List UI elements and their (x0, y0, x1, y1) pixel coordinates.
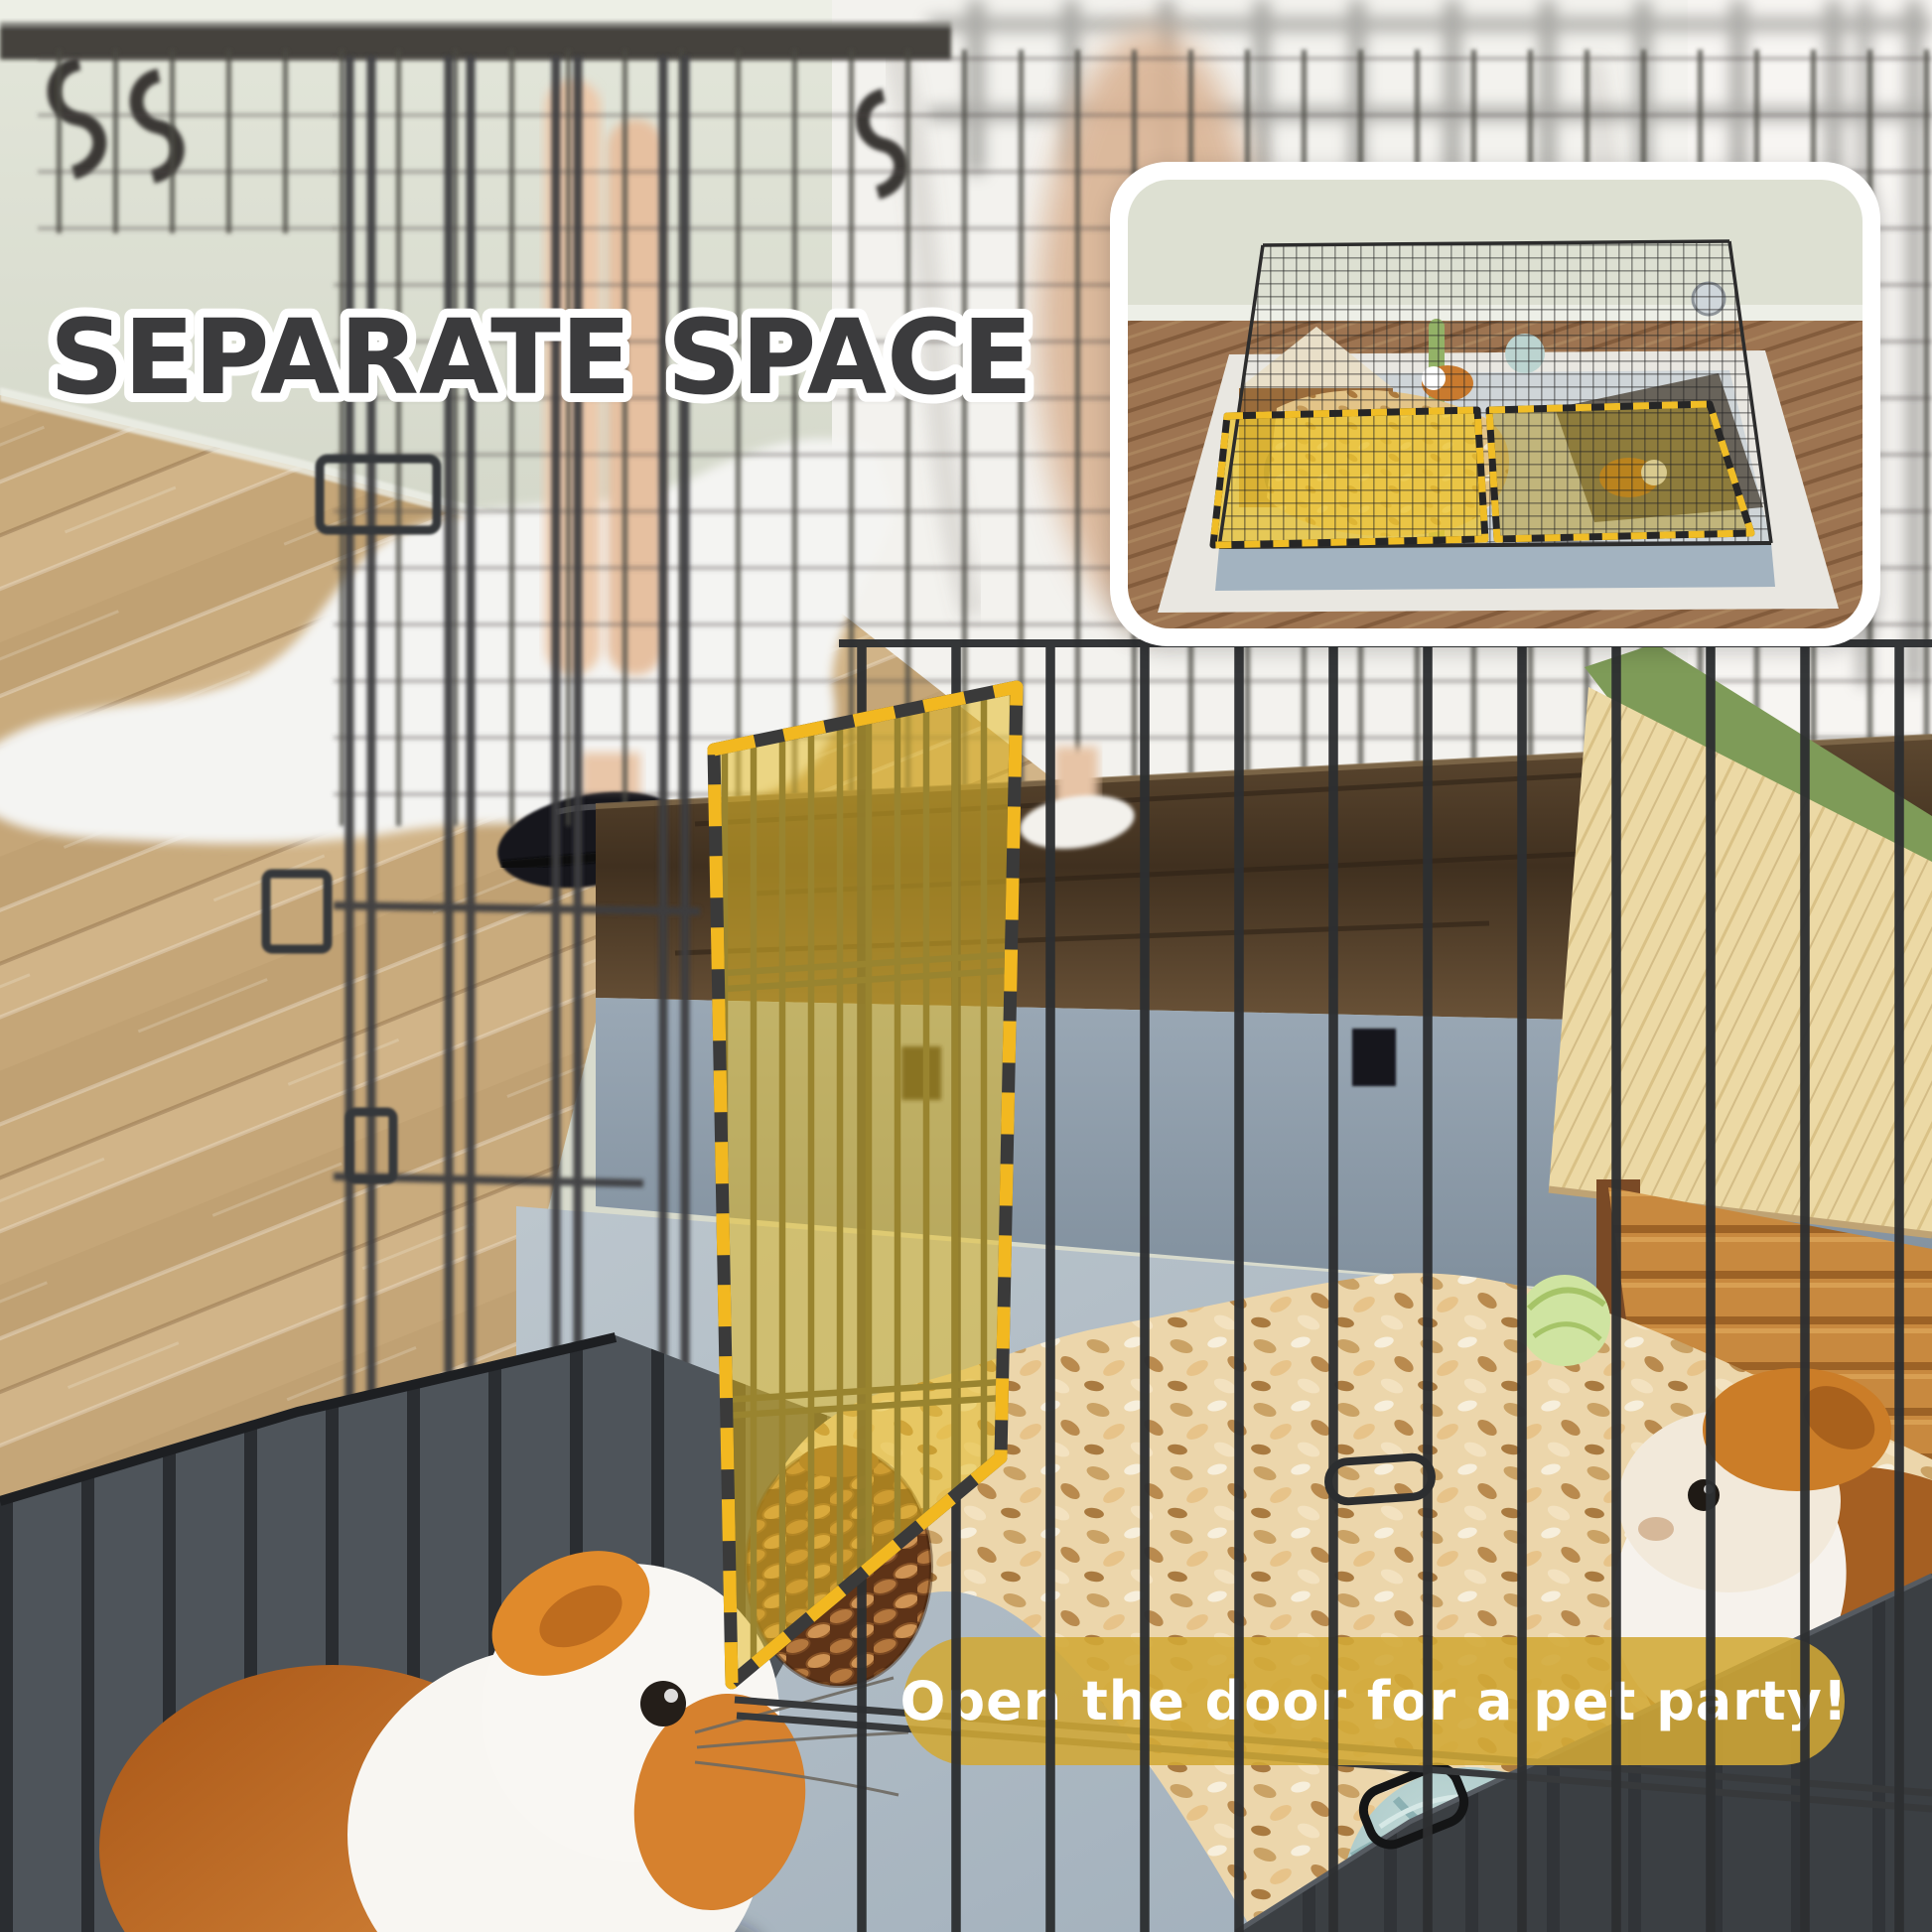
caption-text: Open the door for a pet party! (900, 1670, 1849, 1732)
pinecone (747, 1446, 931, 1686)
product-marketing-image: Open the door for a pet party! (0, 0, 1932, 1932)
inset-tray (1215, 543, 1775, 591)
caption-pill: Open the door for a pet party! (903, 1637, 1845, 1765)
cabbage (1519, 1275, 1610, 1366)
guinea-pig-eye (640, 1681, 686, 1726)
inset-photo (1128, 180, 1863, 628)
inset-overview (1110, 162, 1880, 646)
